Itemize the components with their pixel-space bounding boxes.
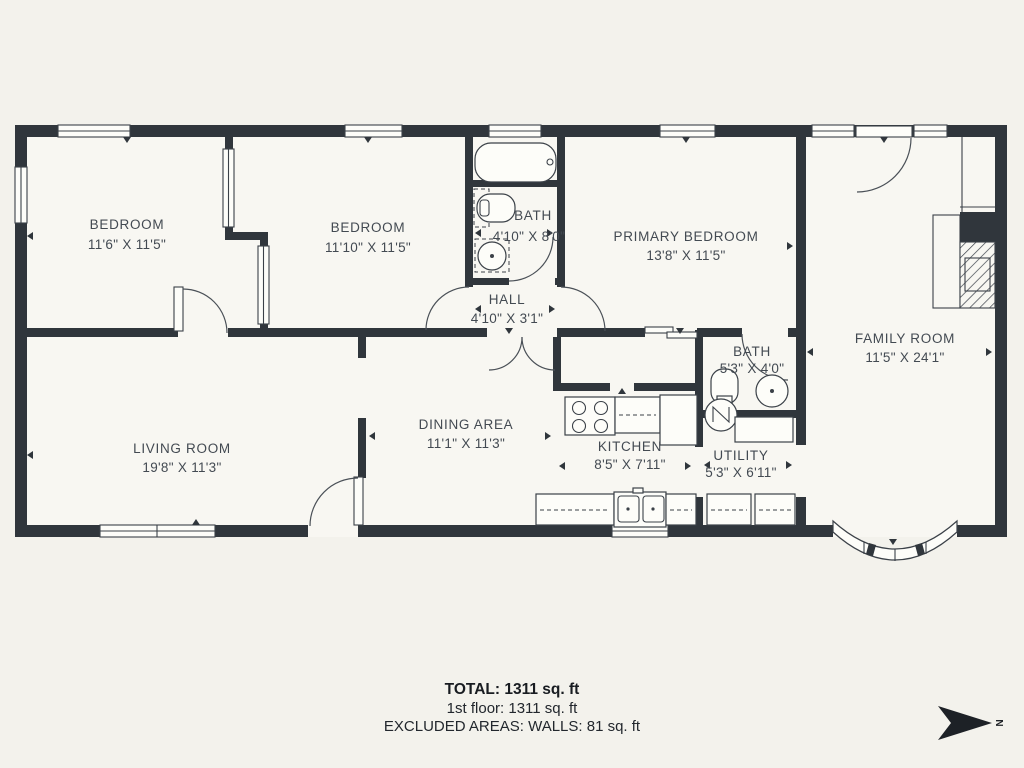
room-dims: 5'3" X 6'11" [705, 465, 776, 480]
north-arrow-icon [938, 706, 992, 740]
room-dims: 11'6" X 11'5" [88, 237, 166, 252]
utility-counter [735, 417, 793, 442]
floor-plan: BEDROOM 11'6" X 11'5" BEDROOM 11'10" X 1… [0, 0, 1024, 768]
counter [666, 494, 696, 525]
window-icon [914, 125, 947, 137]
north-label: N [993, 719, 1004, 726]
room-dims: 5'3" X 4'0" [720, 361, 785, 376]
north-compass: N [938, 706, 1004, 740]
kitchen-sink-icon [614, 488, 666, 527]
room-dims: 11'10" X 11'5" [325, 240, 411, 255]
counter [660, 395, 697, 445]
water-heater-icon [705, 399, 737, 431]
total-area-text: TOTAL: 1311 sq. ft [445, 681, 580, 698]
room-dims: 19'8" X 11'3" [142, 460, 221, 475]
room-dims: 11'1" X 11'3" [427, 436, 505, 451]
first-floor-area-text: 1st floor: 1311 sq. ft [447, 700, 578, 717]
room-name: BATH [514, 208, 552, 223]
window-icon [812, 125, 854, 137]
closet-slider-icon [258, 246, 269, 324]
room-dims: 4'10" X 3'1" [471, 311, 543, 326]
window-icon [345, 125, 402, 137]
room-name: BEDROOM [331, 220, 406, 235]
washer-icon [707, 494, 751, 525]
area-summary: TOTAL: 1311 sq. ft 1st floor: 1311 sq. f… [384, 681, 641, 735]
room-name: BATH [733, 344, 771, 359]
room-dims: 8'5" X 7'11" [594, 457, 665, 472]
floor-plan-page: BEDROOM 11'6" X 11'5" BEDROOM 11'10" X 1… [0, 0, 1024, 768]
room-dims: 13'8" X 11'5" [646, 248, 725, 263]
dryer-icon [755, 494, 795, 525]
stove-icon [565, 397, 615, 435]
window-icon [15, 167, 27, 223]
room-name: UTILITY [713, 448, 768, 463]
counter [615, 397, 660, 433]
bathtub-icon [475, 143, 556, 182]
window-icon [660, 125, 715, 137]
room-dims: 4'10" X 8'0" [493, 229, 565, 244]
window-icon [100, 525, 215, 537]
counter [536, 494, 614, 525]
room-name: HALL [489, 292, 526, 307]
room-name: PRIMARY BEDROOM [613, 229, 758, 244]
room-name: DINING AREA [419, 417, 514, 432]
window-icon [58, 125, 130, 137]
excluded-areas-text: EXCLUDED AREAS: WALLS: 81 sq. ft [384, 718, 641, 735]
room-name: KITCHEN [598, 439, 662, 454]
closet-slider-icon [223, 149, 234, 227]
room-name: BEDROOM [90, 217, 165, 232]
room-name: FAMILY ROOM [855, 331, 955, 346]
room-name: LIVING ROOM [133, 441, 231, 456]
room-dims: 11'5" X 24'1" [865, 350, 944, 365]
window-icon [489, 125, 541, 137]
